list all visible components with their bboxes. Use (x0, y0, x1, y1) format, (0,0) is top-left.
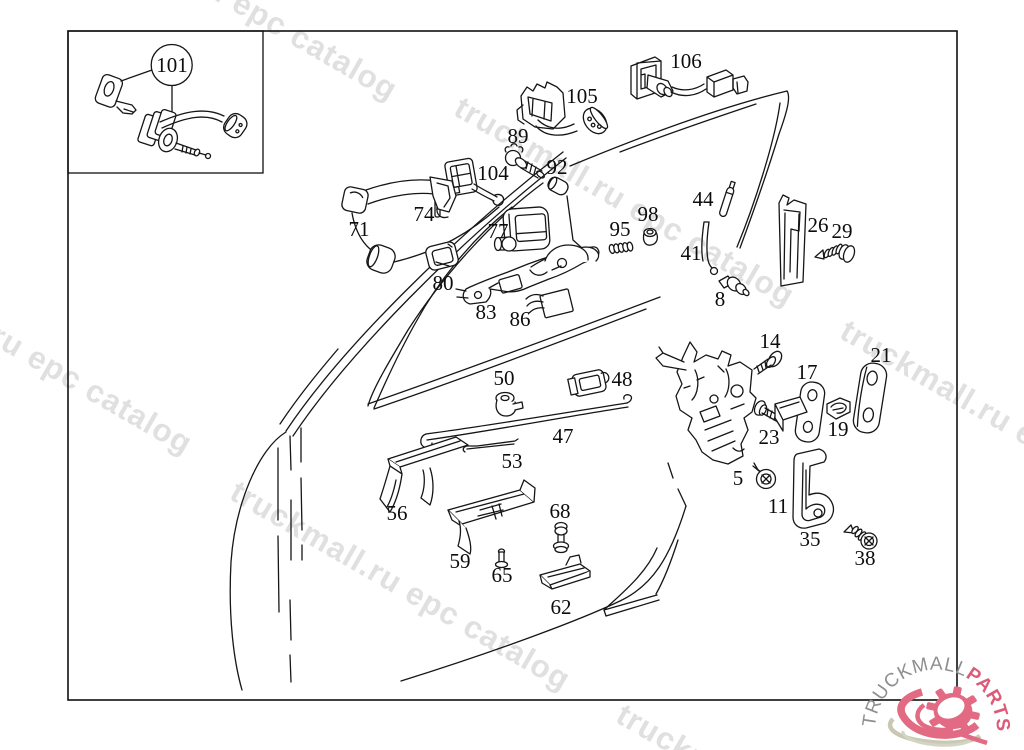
svg-text:83: 83 (476, 300, 497, 324)
svg-text:80: 80 (433, 271, 454, 295)
svg-text:44: 44 (693, 187, 715, 211)
svg-text:53: 53 (502, 449, 523, 473)
svg-text:77: 77 (488, 219, 509, 243)
svg-text:41: 41 (681, 241, 702, 265)
svg-text:17: 17 (797, 360, 818, 384)
svg-text:98: 98 (638, 202, 659, 226)
svg-text:62: 62 (551, 595, 572, 619)
svg-text:71: 71 (349, 217, 370, 241)
svg-text:101: 101 (156, 53, 188, 77)
svg-text:14: 14 (760, 329, 782, 353)
svg-text:48: 48 (612, 367, 633, 391)
svg-text:89: 89 (508, 124, 529, 148)
svg-text:5: 5 (733, 466, 744, 490)
svg-text:35: 35 (800, 527, 821, 551)
svg-text:95: 95 (610, 217, 631, 241)
svg-text:56: 56 (387, 501, 408, 525)
svg-text:47: 47 (553, 424, 574, 448)
svg-text:11: 11 (768, 494, 788, 518)
svg-text:74: 74 (414, 202, 436, 226)
svg-text:19: 19 (828, 417, 849, 441)
svg-text:106: 106 (670, 49, 702, 73)
svg-text:68: 68 (550, 499, 571, 523)
svg-text:26: 26 (808, 213, 829, 237)
svg-text:65: 65 (492, 563, 513, 587)
svg-text:92: 92 (547, 155, 568, 179)
svg-text:21: 21 (871, 343, 892, 367)
svg-text:86: 86 (510, 307, 531, 331)
svg-text:50: 50 (494, 366, 515, 390)
svg-text:38: 38 (855, 546, 876, 570)
svg-text:8: 8 (715, 287, 726, 311)
svg-text:104: 104 (477, 161, 509, 185)
svg-text:29: 29 (832, 219, 853, 243)
svg-text:105: 105 (566, 84, 598, 108)
svg-text:23: 23 (759, 425, 780, 449)
svg-text:59: 59 (450, 549, 471, 573)
